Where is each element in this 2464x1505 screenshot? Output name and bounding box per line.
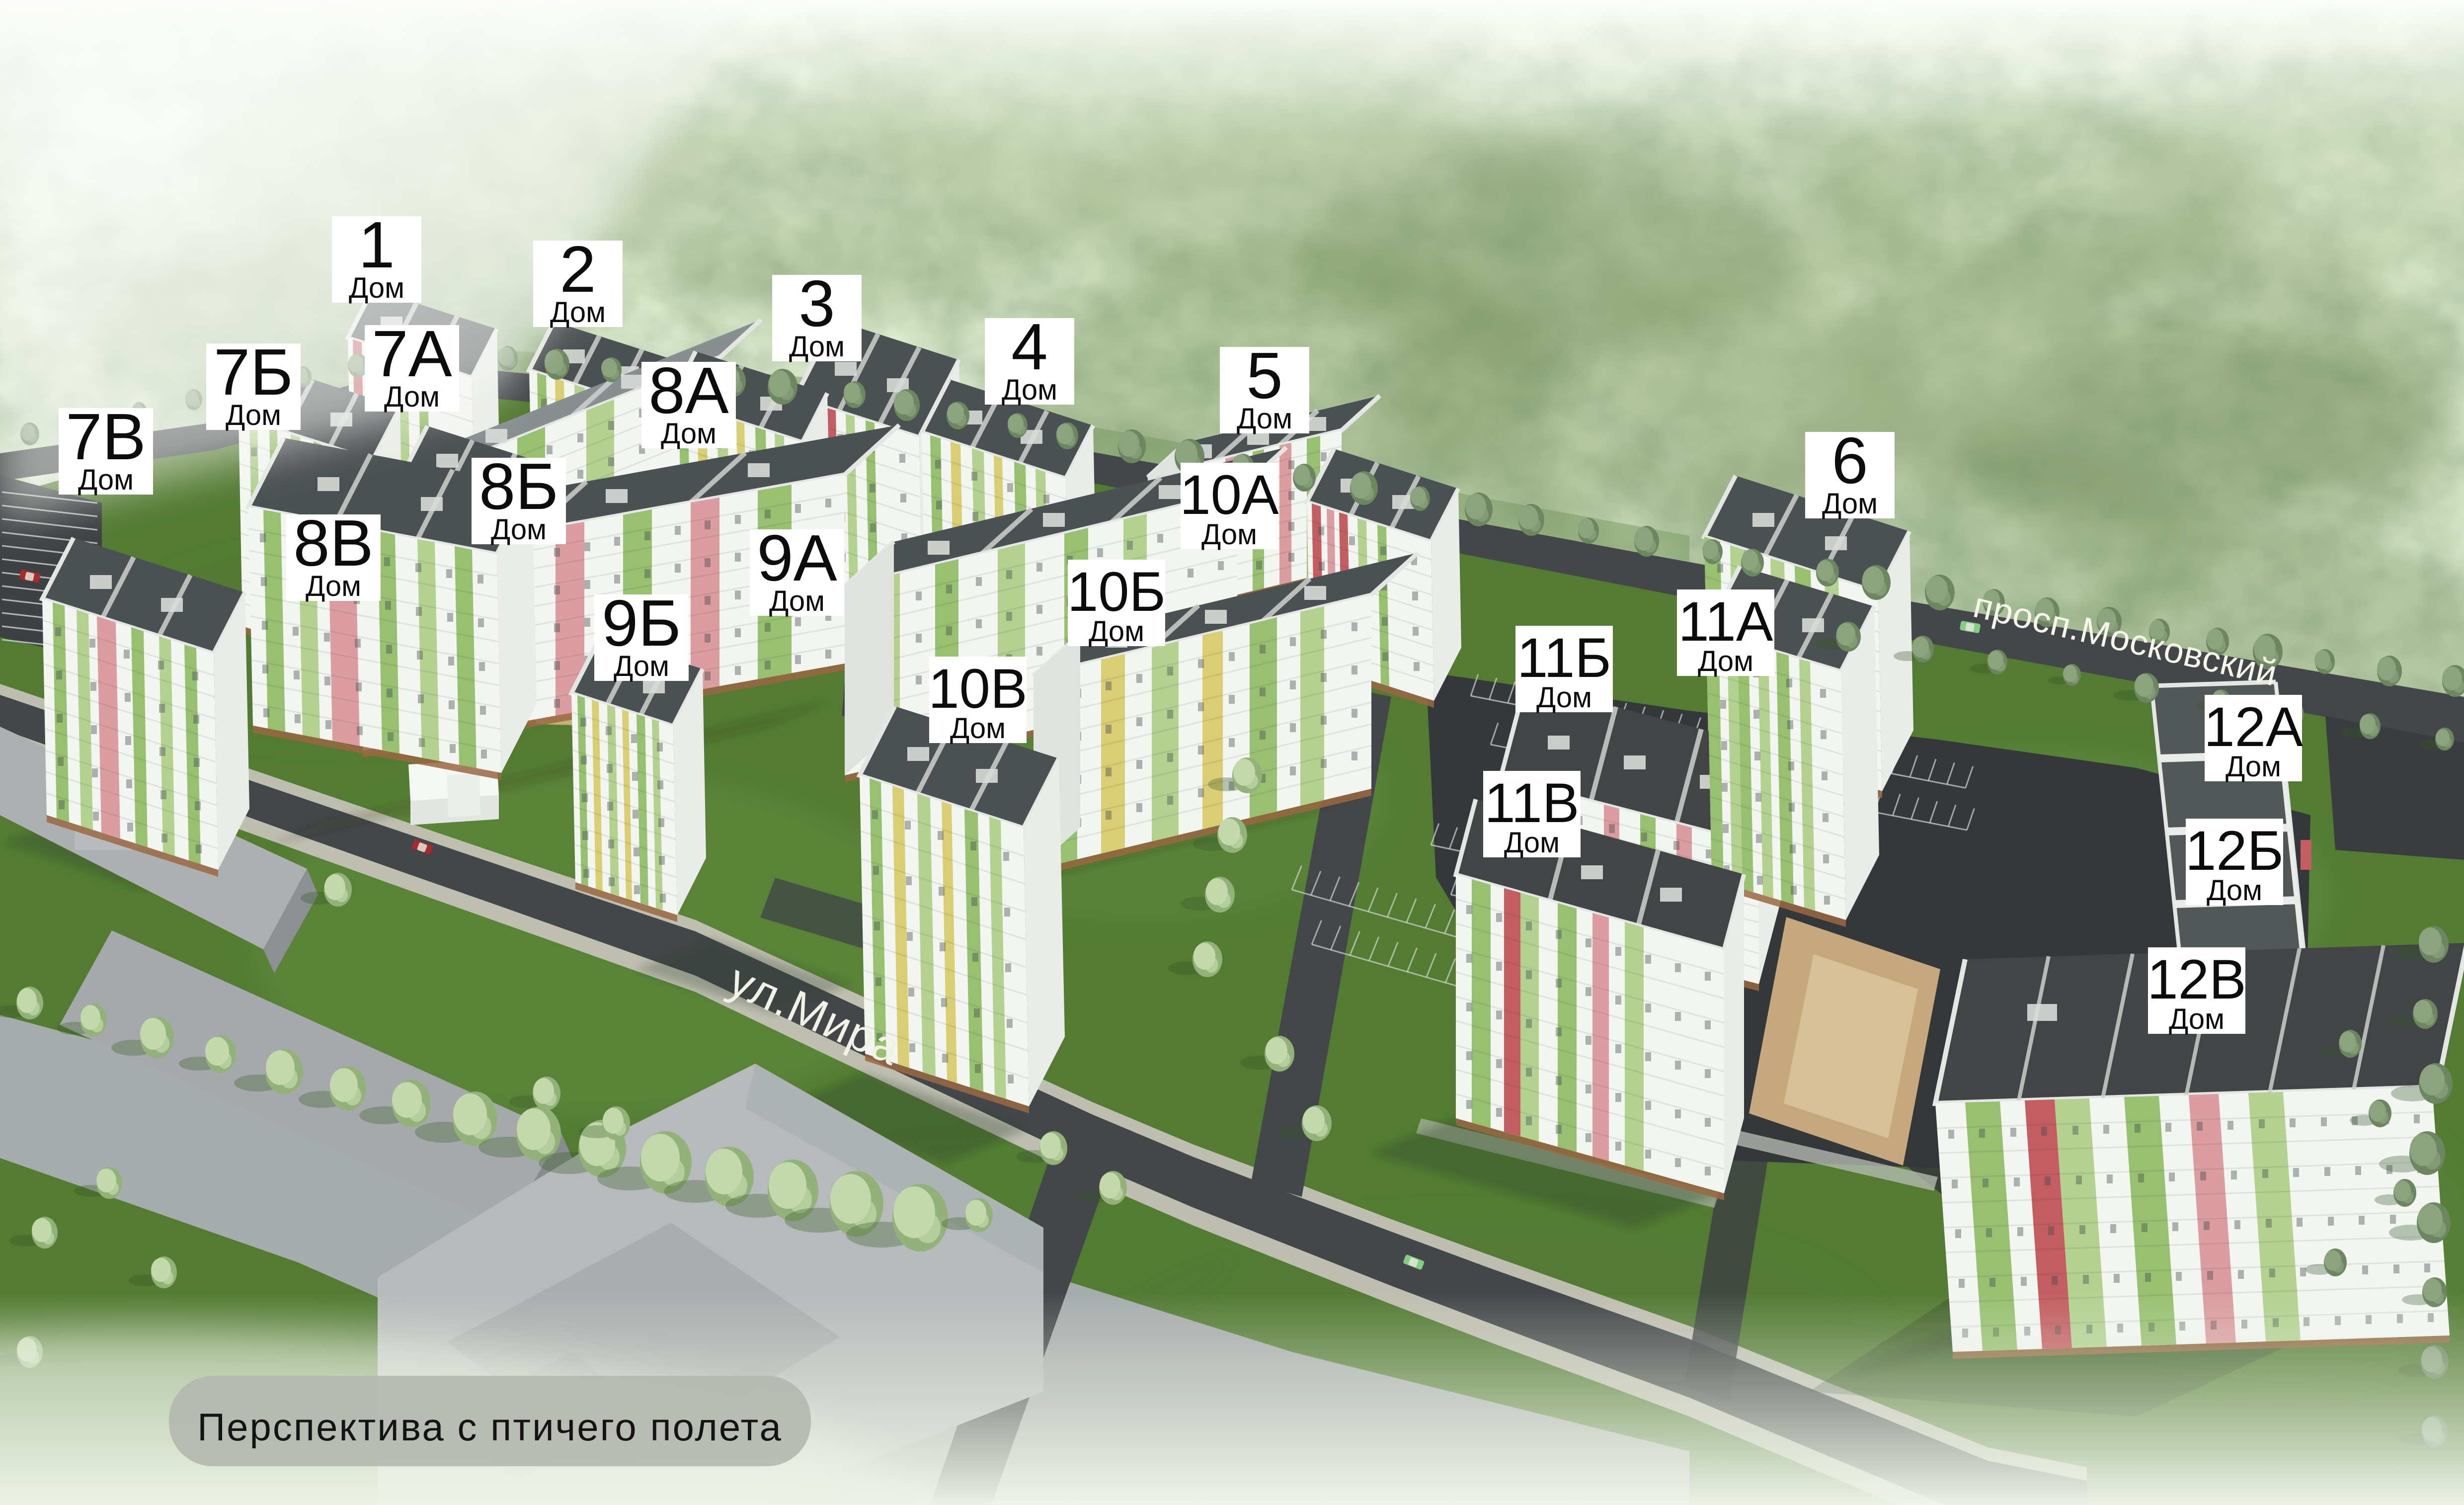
- svg-text:Дом: Дом: [1089, 615, 1144, 648]
- svg-text:Дом: Дом: [2207, 874, 2262, 907]
- svg-text:9Б: 9Б: [602, 586, 681, 660]
- svg-text:5: 5: [1246, 339, 1282, 412]
- svg-text:Дом: Дом: [226, 399, 281, 431]
- svg-text:Дом: Дом: [349, 272, 404, 304]
- svg-text:Дом: Дом: [789, 331, 845, 363]
- svg-text:4: 4: [1011, 310, 1047, 383]
- svg-text:7В: 7В: [66, 400, 146, 473]
- svg-text:Дом: Дом: [614, 650, 669, 682]
- svg-text:Дом: Дом: [1002, 374, 1057, 406]
- svg-text:Дом: Дом: [2226, 751, 2281, 783]
- svg-text:3: 3: [798, 267, 835, 340]
- svg-text:Дом: Дом: [2169, 1003, 2225, 1035]
- svg-text:9А: 9А: [757, 521, 837, 594]
- svg-text:11Б: 11Б: [1517, 627, 1611, 689]
- svg-text:1: 1: [358, 208, 395, 281]
- svg-text:10В: 10В: [928, 658, 1027, 720]
- svg-text:Дом: Дом: [384, 381, 440, 413]
- svg-text:10А: 10А: [1180, 464, 1279, 526]
- svg-text:11В: 11В: [1485, 772, 1580, 834]
- svg-text:12Б: 12Б: [2185, 820, 2284, 882]
- svg-text:Дом: Дом: [950, 712, 1006, 745]
- svg-text:12А: 12А: [2204, 696, 2303, 758]
- svg-text:7А: 7А: [372, 317, 452, 390]
- svg-text:Дом: Дом: [769, 585, 825, 617]
- svg-text:Дом: Дом: [550, 296, 606, 329]
- svg-text:7Б: 7Б: [214, 335, 293, 409]
- svg-text:Дом: Дом: [1536, 681, 1592, 714]
- svg-text:Дом: Дом: [1822, 488, 1878, 520]
- svg-text:10Б: 10Б: [1067, 561, 1166, 623]
- svg-text:8Б: 8Б: [479, 450, 558, 523]
- svg-text:Дом: Дом: [306, 570, 361, 602]
- svg-text:2: 2: [559, 233, 596, 306]
- svg-text:Дом: Дом: [78, 464, 134, 496]
- svg-text:8В: 8В: [293, 506, 373, 580]
- svg-text:Дом: Дом: [661, 418, 716, 450]
- svg-text:12В: 12В: [2147, 948, 2246, 1010]
- svg-text:8А: 8А: [648, 354, 728, 427]
- svg-text:Дом: Дом: [1504, 827, 1560, 859]
- svg-text:Дом: Дом: [1237, 403, 1292, 435]
- svg-text:6: 6: [1831, 424, 1868, 497]
- svg-text:11А: 11А: [1678, 590, 1773, 653]
- svg-text:Дом: Дом: [491, 513, 547, 546]
- svg-text:Дом: Дом: [1698, 645, 1753, 677]
- svg-text:Перспектива с птичего полета: Перспектива с птичего полета: [197, 1405, 783, 1449]
- svg-text:Дом: Дом: [1201, 518, 1257, 551]
